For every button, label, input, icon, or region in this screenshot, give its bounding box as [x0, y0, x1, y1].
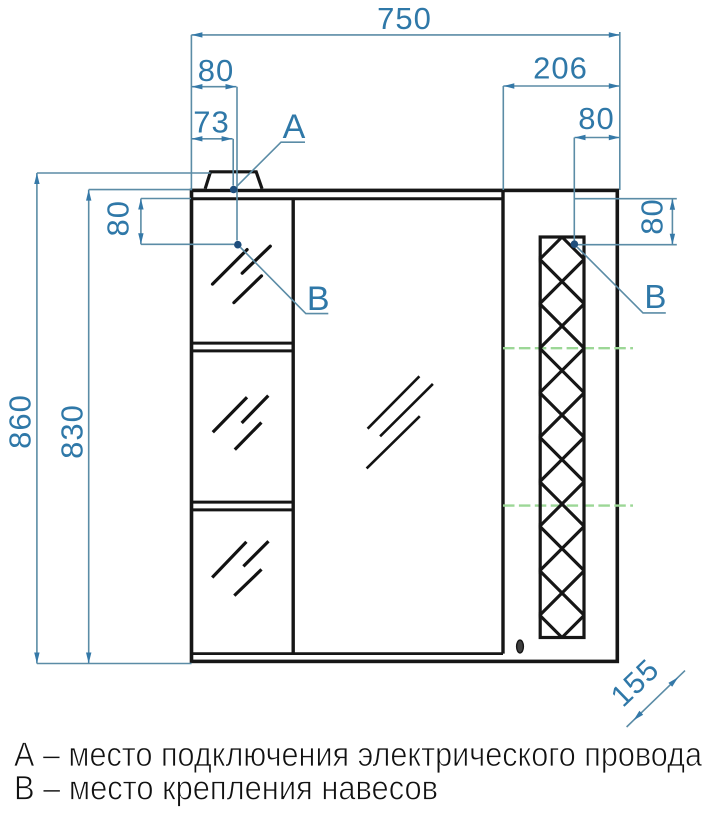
svg-text:А – место подключения электрич: А – место подключения электрического про…	[14, 736, 702, 774]
svg-text:80: 80	[101, 200, 136, 236]
svg-text:830: 830	[55, 404, 90, 459]
svg-text:860: 860	[3, 394, 38, 449]
svg-text:A: A	[283, 108, 306, 146]
svg-text:B: B	[644, 278, 666, 315]
svg-text:В – место крепления навесов: В – место крепления навесов	[14, 770, 438, 808]
svg-text:80: 80	[198, 53, 234, 88]
svg-text:73: 73	[193, 105, 229, 140]
svg-text:80: 80	[635, 198, 670, 234]
svg-text:750: 750	[377, 1, 432, 36]
svg-text:80: 80	[578, 101, 614, 136]
svg-text:B: B	[307, 280, 330, 318]
svg-text:206: 206	[533, 51, 588, 86]
